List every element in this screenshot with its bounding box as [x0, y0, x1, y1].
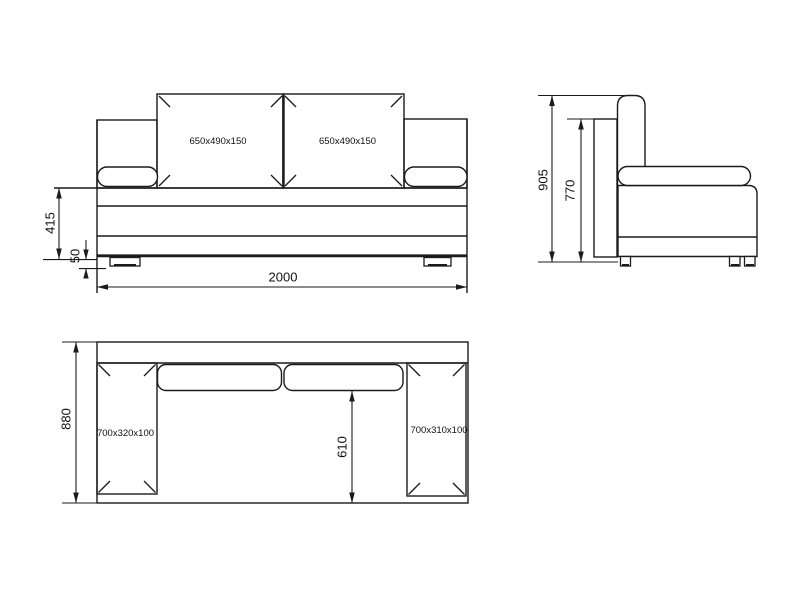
side-back-panel	[594, 119, 617, 257]
front-right-armrest-pillow	[405, 167, 468, 187]
dim-880-text: 880	[59, 408, 74, 430]
front-view: 415 50 2000 650x490x150 650x490x150	[43, 94, 468, 293]
left-cushion-size-label: 650x490x150	[189, 136, 246, 147]
dim-50-text: 50	[68, 249, 83, 263]
side-view: 905 770	[536, 96, 758, 267]
top-pillow-left	[158, 365, 282, 391]
dim-905-text: 905	[536, 169, 551, 191]
top-view: 700x320x100 700x310x100 880 610	[59, 342, 469, 503]
dim-610-text: 610	[335, 436, 350, 458]
right-cushion-size-label: 650x490x150	[319, 136, 376, 147]
right-armrest-size-label: 700x310x100	[410, 425, 467, 436]
dim-415-text: 415	[43, 212, 58, 234]
dim-770: 770	[563, 119, 595, 262]
dim-770-text: 770	[563, 180, 578, 202]
technical-drawing-canvas: 415 50 2000 650x490x150 650x490x150	[0, 0, 800, 600]
dim-880: 880	[59, 342, 98, 503]
dim-2000-text: 2000	[269, 270, 298, 285]
side-armrest-pillow	[618, 167, 751, 186]
left-armrest-size-label: 700x320x100	[97, 428, 154, 439]
dim-610: 610	[335, 391, 355, 503]
front-left-armrest-pillow	[98, 167, 158, 187]
sofa-dimension-drawing: 415 50 2000 650x490x150 650x490x150	[0, 0, 800, 600]
side-body	[618, 186, 757, 257]
top-pillow-right	[284, 365, 403, 391]
dim-2000: 2000	[97, 270, 467, 290]
top-outline	[97, 342, 468, 503]
